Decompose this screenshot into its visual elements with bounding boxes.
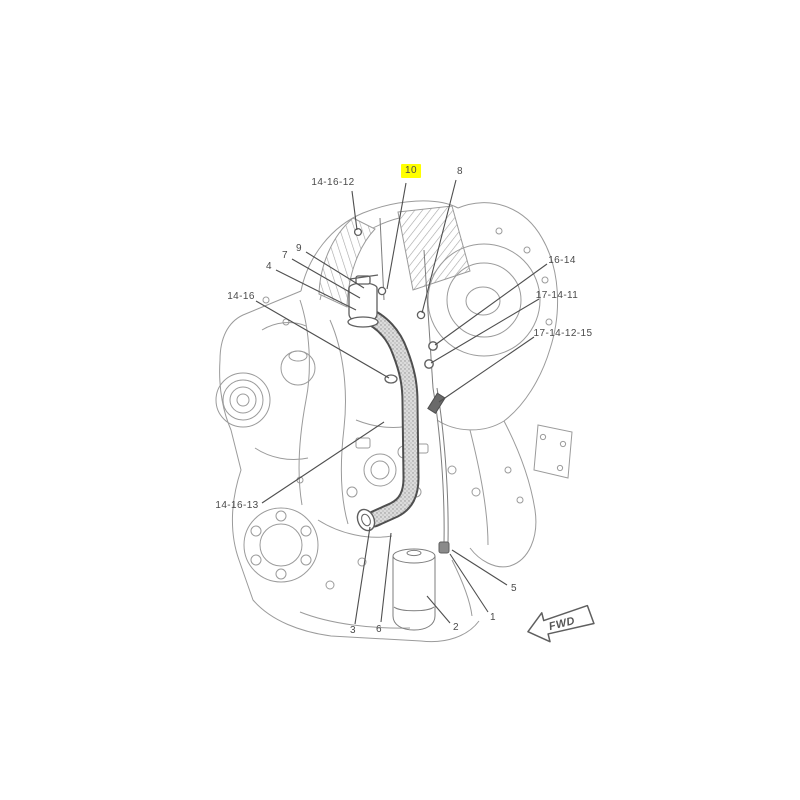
callout-5[interactable]: 5 bbox=[511, 583, 517, 595]
parts-diagram-canvas: 14-16-12 10 8 9 7 4 14-16 16-14 17-14-11… bbox=[0, 0, 800, 800]
callout-1[interactable]: 1 bbox=[490, 612, 496, 624]
callout-16-14[interactable]: 16-14 bbox=[548, 255, 576, 267]
callout-4[interactable]: 4 bbox=[266, 261, 272, 273]
callout-14-16-12[interactable]: 14-16-12 bbox=[311, 177, 354, 189]
callout-17-14-11[interactable]: 17-14-11 bbox=[536, 290, 579, 302]
callout-14-16[interactable]: 14-16 bbox=[227, 291, 255, 303]
callout-10-highlighted[interactable]: 10 bbox=[401, 164, 421, 178]
engine-diagram-art bbox=[0, 0, 800, 800]
callout-14-16-13[interactable]: 14-16-13 bbox=[215, 500, 258, 512]
callout-9[interactable]: 9 bbox=[296, 243, 302, 255]
callout-17-14-12-15[interactable]: 17-14-12-15 bbox=[534, 328, 593, 340]
callout-2[interactable]: 2 bbox=[453, 622, 459, 634]
callout-6[interactable]: 6 bbox=[376, 624, 382, 636]
callout-8[interactable]: 8 bbox=[457, 166, 463, 178]
callout-7[interactable]: 7 bbox=[282, 250, 288, 262]
callout-3[interactable]: 3 bbox=[350, 625, 356, 637]
